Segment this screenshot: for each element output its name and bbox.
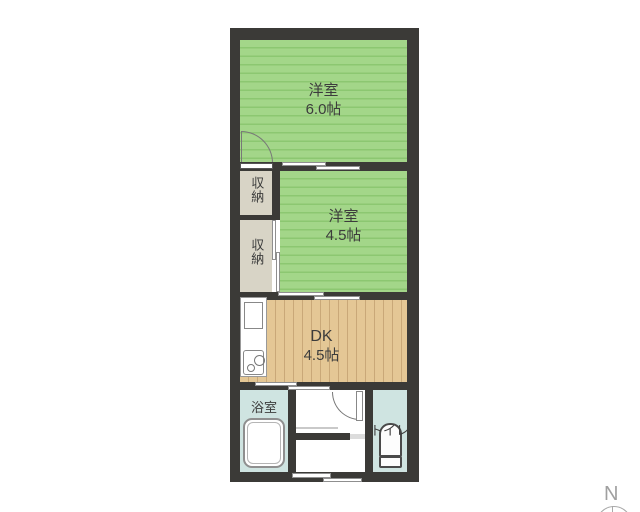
sliding-door-b <box>278 292 360 300</box>
entrance-sliding-door <box>292 473 362 482</box>
floorplan-canvas: 洋室 6.0帖 収納 収納 洋室 4.5帖 DK 4.5帖 <box>0 0 640 512</box>
compass-needle-icon <box>612 506 613 512</box>
sliding-door-a <box>282 162 360 170</box>
closet-upper-label: 収納 <box>248 176 264 204</box>
wall-top <box>230 28 419 40</box>
closet-sliding-panel <box>272 220 280 292</box>
bath-label: 浴室 <box>240 400 288 416</box>
door-swing-line <box>241 131 242 163</box>
stove <box>243 350 264 375</box>
closet-side-wall <box>272 171 280 220</box>
room-size: 4.5帖 <box>280 227 407 246</box>
threshold-line <box>296 427 338 429</box>
kitchen-counter <box>240 297 267 377</box>
compass-circle-icon <box>596 506 632 512</box>
room-name: 洋室 <box>240 82 407 101</box>
room-size: 6.0帖 <box>240 101 407 120</box>
toilet-fixture-tank <box>379 456 402 468</box>
toilet-label: トイレ <box>362 423 417 439</box>
wall-bath-hall <box>288 390 296 472</box>
room-western-45-label: 洋室 4.5帖 <box>280 208 407 246</box>
kitchen-sink <box>244 302 263 329</box>
hinged-door-leaf <box>356 391 363 421</box>
burner-icon <box>254 355 265 366</box>
burner-icon <box>247 364 255 372</box>
room-name: 洋室 <box>280 208 407 227</box>
wall-left <box>230 28 240 482</box>
bathtub <box>243 418 285 468</box>
room-dk-label: DK 4.5帖 <box>258 327 385 366</box>
room-size: 4.5帖 <box>258 347 385 366</box>
hinged-door-leaf <box>240 163 273 169</box>
sliding-door-c <box>255 382 330 390</box>
closet-lower-label: 収納 <box>248 238 264 266</box>
room-name: DK <box>258 327 385 347</box>
hall-divider-wall <box>296 433 350 440</box>
room-western-6-label: 洋室 6.0帖 <box>240 82 407 120</box>
bathtub-inner <box>247 422 281 464</box>
hall-lower <box>296 440 365 472</box>
compass-north-indicator: N <box>590 483 640 512</box>
compass-n-label: N <box>604 483 618 506</box>
wall-right <box>407 28 419 482</box>
